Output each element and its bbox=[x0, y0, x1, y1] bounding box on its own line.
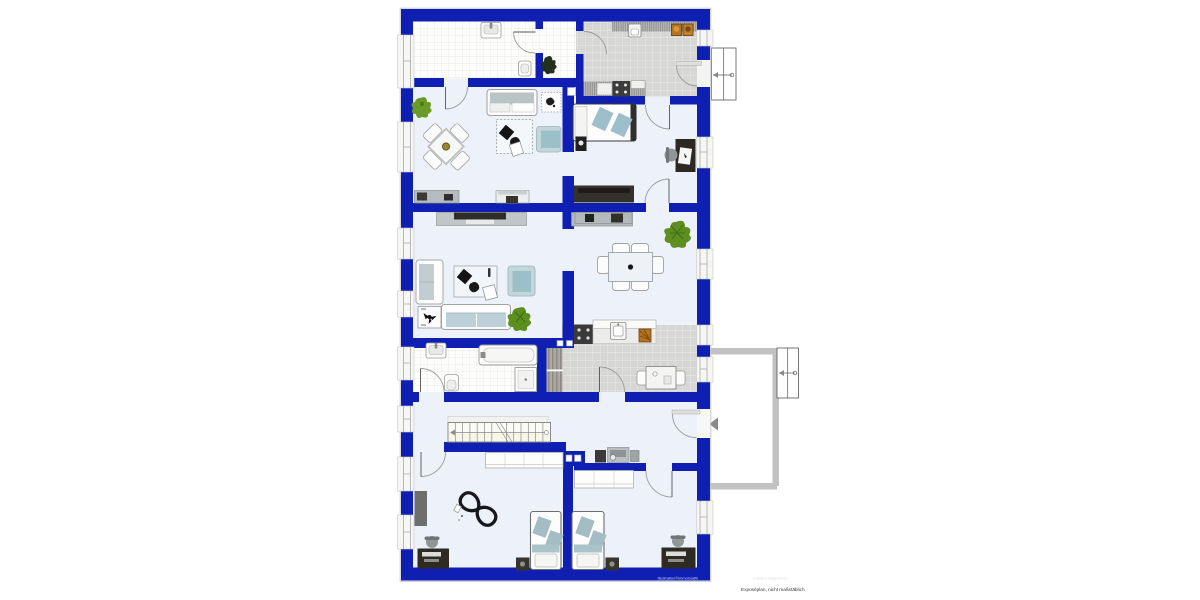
svg-text:Illustration©ImmoGrafik: Illustration©ImmoGrafik bbox=[658, 576, 699, 581]
svg-text:Grundriss Erdgeschoss: Grundriss Erdgeschoss bbox=[753, 577, 788, 581]
svg-text:Exposéplan, nicht maßstäblich: Exposéplan, nicht maßstäblich bbox=[741, 587, 805, 592]
